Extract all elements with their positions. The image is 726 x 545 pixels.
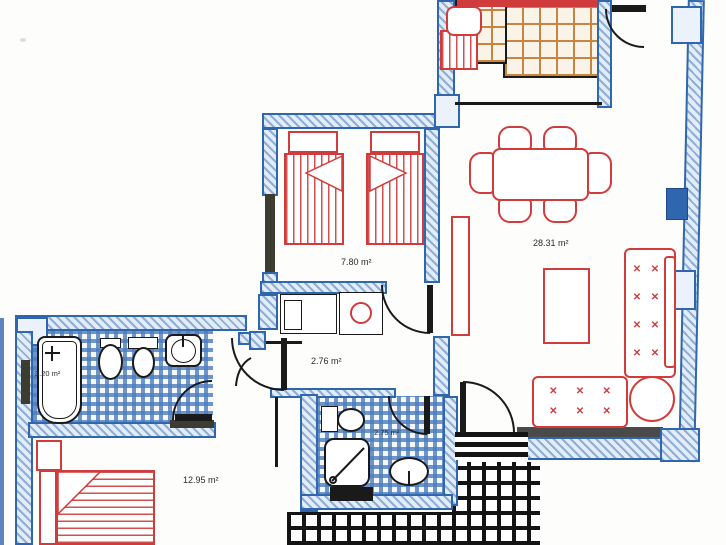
area-label-living: 28.31 m²	[533, 238, 569, 248]
wall-right-exterior	[678, 0, 705, 462]
wall-marker-box	[249, 331, 266, 350]
round-side-table	[629, 376, 675, 422]
cushion-x: ✕	[651, 349, 659, 359]
door-leaf	[281, 338, 287, 390]
door-arc-living-terrace	[463, 382, 514, 433]
door-arc-small	[236, 358, 251, 386]
cushion-x: ✕	[633, 265, 641, 275]
wall-line	[275, 397, 278, 467]
sofa-small-cushions: ✕✕ ✕✕ ✕✕	[540, 382, 620, 422]
wall-unit-box	[666, 188, 688, 220]
washbasin-2	[389, 457, 429, 486]
cushion-x: ✕	[549, 407, 557, 417]
door-leaf	[427, 285, 433, 333]
door-threshold-dark	[170, 420, 214, 428]
toilet	[132, 347, 155, 378]
twin-bed-1-pillow	[288, 131, 338, 153]
window-bathroom	[21, 360, 30, 404]
window-bedroom-twin	[265, 194, 275, 274]
kitchen-sink	[446, 6, 482, 36]
dining-chair	[543, 126, 577, 150]
wall-segment	[597, 0, 612, 108]
toilet-2	[337, 408, 365, 432]
cushion-x: ✕	[651, 321, 659, 331]
area-label-bathroom: 3.20 m²	[35, 369, 60, 378]
dining-chair	[498, 199, 532, 223]
nightstand	[36, 440, 62, 471]
terrace-tiles-right	[452, 462, 540, 545]
bathtub-inner	[42, 341, 77, 419]
wall-segment	[270, 388, 396, 398]
toilet-2-tank	[321, 406, 338, 432]
wall-pier	[258, 294, 278, 330]
cushion-x: ✕	[602, 387, 610, 397]
wall-column	[674, 270, 696, 310]
bidet	[98, 344, 123, 380]
cushion-x: ✕	[633, 321, 641, 331]
twin-bed-1	[284, 153, 344, 245]
wall-corner	[660, 428, 700, 462]
wall-segment	[262, 113, 438, 129]
wall-column	[671, 6, 702, 44]
washing-machine-drum	[350, 302, 372, 324]
door-leaf	[612, 5, 646, 12]
wall-segment	[300, 494, 453, 510]
area-label-corridor: 2.76 m²	[311, 356, 342, 366]
dining-chair	[469, 152, 494, 194]
double-bed	[56, 470, 155, 545]
kitchen-tile-floor	[503, 0, 600, 78]
wall-outer-line	[0, 318, 4, 545]
sideboard	[451, 216, 470, 336]
door-arc-corridor	[382, 285, 430, 333]
scan-speck	[20, 38, 26, 42]
floor-plan: ✕✕ ✕✕ ✕✕ ✕✕ ✕✕ ✕✕ ✕✕	[0, 0, 726, 545]
double-bed-headboard	[39, 470, 57, 545]
sofa-large-backrest	[664, 256, 676, 368]
cushion-x: ✕	[651, 265, 659, 275]
kitchen-zone-line	[455, 102, 602, 105]
dining-chair	[543, 199, 577, 223]
cushion-x: ✕	[576, 407, 584, 417]
cushion-x: ✕	[549, 387, 557, 397]
twin-bed-2	[366, 153, 424, 245]
wall-segment	[433, 336, 450, 396]
coffee-table	[543, 268, 590, 344]
dining-chair	[498, 126, 532, 150]
cushion-x: ✕	[651, 293, 659, 303]
terrace-tiles-bottom	[287, 512, 453, 545]
area-label-bedroom-twin: 7.80 m²	[341, 257, 372, 267]
door-leaf	[460, 382, 466, 433]
dining-chair	[587, 152, 612, 194]
cushion-x: ✕	[602, 407, 610, 417]
cushion-x: ✕	[633, 349, 641, 359]
twin-bed-2-pillow	[370, 131, 420, 153]
terrace-steps	[455, 432, 528, 460]
sofa-large-cushions: ✕✕ ✕✕ ✕✕ ✕✕	[628, 256, 664, 368]
wall-segment	[262, 128, 278, 196]
area-label-shower-room: 2.75 m²	[374, 428, 399, 437]
wall-segment	[15, 315, 247, 331]
cushion-x: ✕	[633, 293, 641, 303]
shower-base	[330, 487, 373, 501]
dining-table	[492, 148, 589, 201]
wall-segment	[424, 128, 440, 283]
kitchen-cabinet-hatched	[440, 30, 478, 70]
kitchen-counter-strip	[457, 0, 597, 7]
closet-shelf	[284, 300, 302, 330]
washbasin-bowl	[171, 339, 196, 363]
wall-column	[434, 94, 460, 128]
area-label-bedroom-double: 12.95 m²	[183, 475, 219, 485]
wall-segment	[510, 437, 684, 460]
cushion-x: ✕	[576, 387, 584, 397]
shower-tray	[324, 438, 370, 487]
